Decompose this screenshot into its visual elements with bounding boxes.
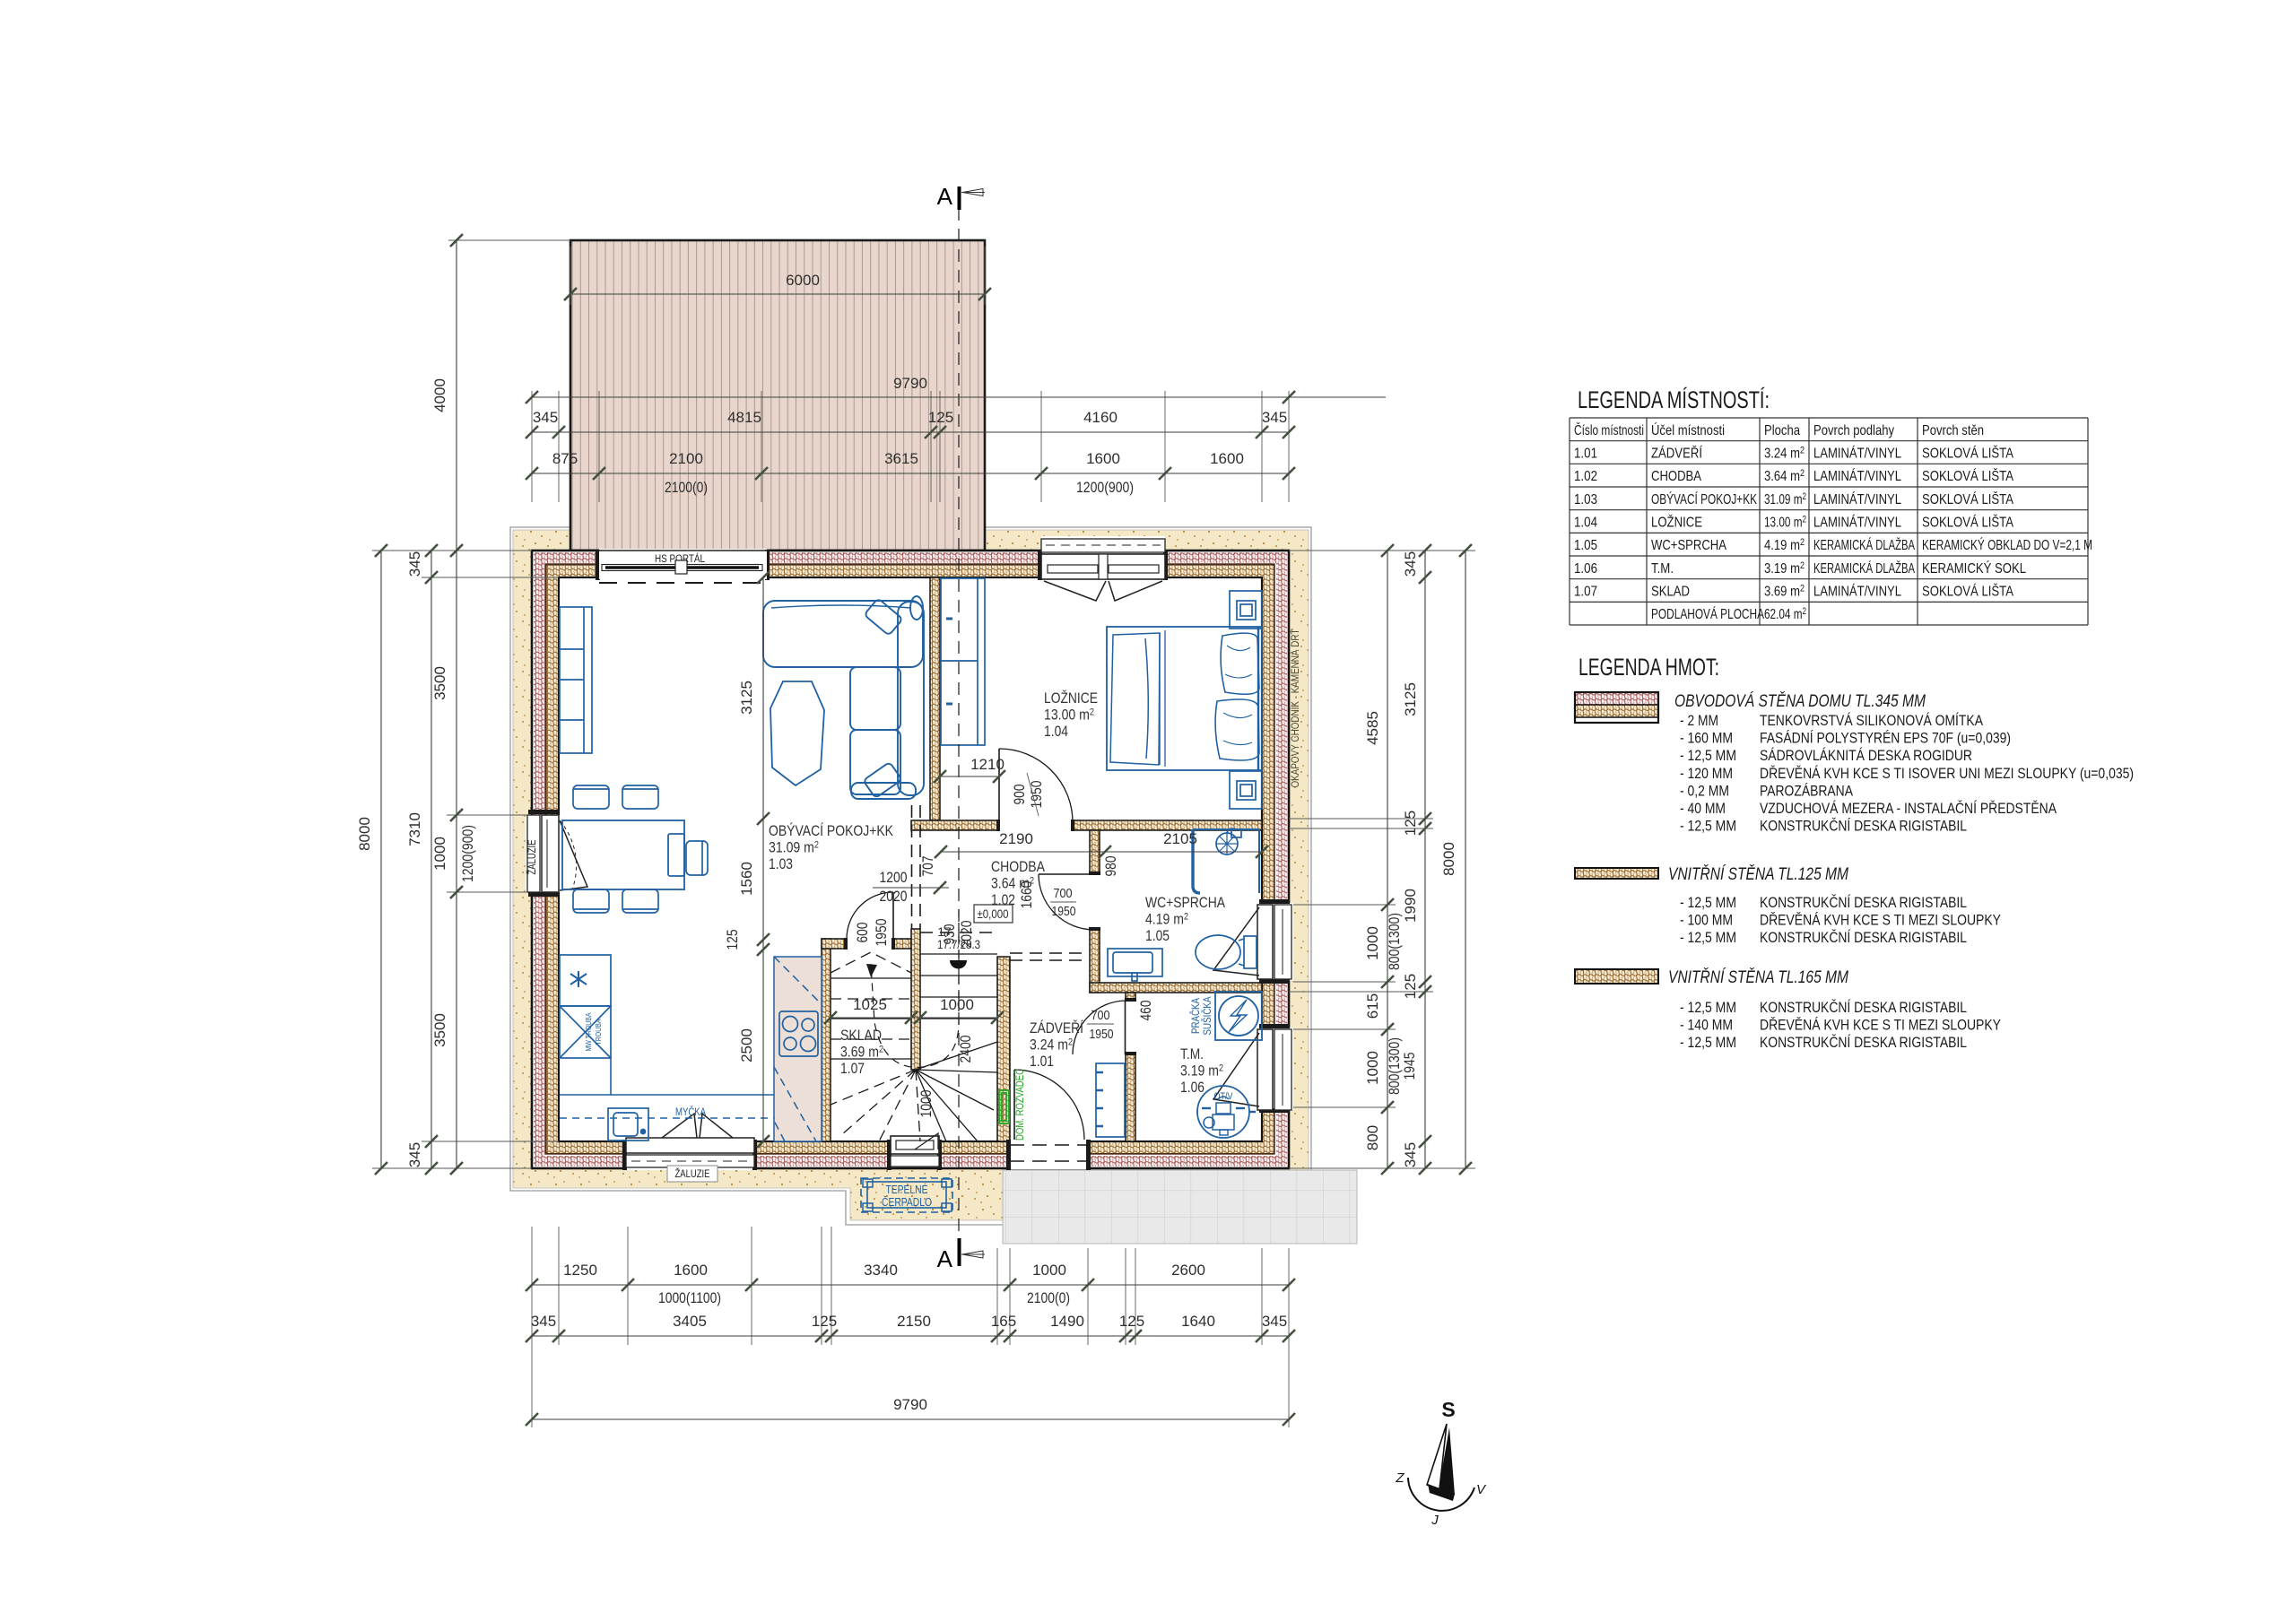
svg-text:OT/V: OT/V bbox=[1214, 1091, 1234, 1102]
svg-text:Z: Z bbox=[1395, 1470, 1405, 1486]
svg-text:- 100 MM: - 100 MM bbox=[1680, 912, 1733, 929]
svg-text:KONSTRUKČNÍ DESKA RIGISTABIL: KONSTRUKČNÍ DESKA RIGISTABIL bbox=[1760, 818, 1967, 835]
svg-text:1000: 1000 bbox=[1032, 1262, 1066, 1279]
svg-text:800: 800 bbox=[1364, 1125, 1381, 1150]
svg-text:2190: 2190 bbox=[999, 830, 1033, 847]
svg-text:125: 125 bbox=[724, 930, 741, 950]
svg-text:KERAMICKÁ DLAŽBA: KERAMICKÁ DLAŽBA bbox=[1813, 559, 1915, 577]
svg-text:1990: 1990 bbox=[1402, 889, 1419, 923]
svg-text:1560: 1560 bbox=[738, 862, 755, 896]
svg-text:1.01: 1.01 bbox=[1574, 447, 1597, 462]
svg-text:SOKLOVÁ LIŠTA: SOKLOVÁ LIŠTA bbox=[1922, 583, 2013, 600]
svg-text:4000: 4000 bbox=[431, 378, 448, 412]
svg-text:4160: 4160 bbox=[1083, 409, 1118, 426]
svg-text:3.19 m2: 3.19 m2 bbox=[1764, 560, 1805, 577]
svg-text:ŽALUZIE: ŽALUZIE bbox=[526, 839, 538, 874]
svg-text:- 12,5 MM: - 12,5 MM bbox=[1680, 999, 1736, 1016]
svg-text:31.09 m2: 31.09 m2 bbox=[1764, 491, 1806, 507]
svg-text:KONSTRUKČNÍ DESKA RIGISTABIL: KONSTRUKČNÍ DESKA RIGISTABIL bbox=[1760, 999, 1967, 1016]
svg-text:VNITŘNÍ STĚNA TL.125 MM: VNITŘNÍ STĚNA TL.125 MM bbox=[1668, 864, 1848, 884]
svg-text:V: V bbox=[1476, 1482, 1487, 1497]
svg-text:1600: 1600 bbox=[1086, 450, 1120, 467]
svg-text:7310: 7310 bbox=[406, 812, 423, 846]
svg-text:4585: 4585 bbox=[1364, 711, 1381, 745]
svg-text:1.07: 1.07 bbox=[840, 1060, 865, 1077]
svg-text:LEGENDA MÍSTNOSTÍ:: LEGENDA MÍSTNOSTÍ: bbox=[1578, 386, 1770, 413]
svg-text:700: 700 bbox=[1091, 1008, 1110, 1023]
svg-text:2500: 2500 bbox=[738, 1028, 755, 1063]
svg-text:TENKOVRSTVÁ SILIKONOVÁ OMÍTKA: TENKOVRSTVÁ SILIKONOVÁ OMÍTKA bbox=[1760, 712, 1984, 729]
svg-text:125: 125 bbox=[1402, 974, 1419, 999]
svg-text:PAROZÁBRANA: PAROZÁBRANA bbox=[1760, 782, 1854, 799]
svg-text:ŽALUZIE: ŽALUZIE bbox=[675, 1168, 710, 1180]
svg-text:VNITŘNÍ STĚNA TL.165 MM: VNITŘNÍ STĚNA TL.165 MM bbox=[1668, 967, 1848, 987]
svg-text:- 12,5 MM: - 12,5 MM bbox=[1680, 894, 1736, 911]
svg-text:LAMINÁT/VINYL: LAMINÁT/VINYL bbox=[1813, 514, 1901, 531]
svg-text:Povrch stěn: Povrch stěn bbox=[1922, 423, 1984, 438]
svg-text:1.01: 1.01 bbox=[1030, 1053, 1054, 1070]
svg-text:T.M.: T.M. bbox=[1651, 561, 1674, 577]
svg-text:13.00 m2: 13.00 m2 bbox=[1044, 707, 1094, 724]
svg-text:345: 345 bbox=[531, 1313, 556, 1330]
svg-text:- 160 MM: - 160 MM bbox=[1680, 730, 1733, 747]
svg-text:KONSTRUKČNÍ DESKA RIGISTABIL: KONSTRUKČNÍ DESKA RIGISTABIL bbox=[1760, 1034, 1967, 1051]
svg-text:CHODBA: CHODBA bbox=[991, 858, 1046, 875]
svg-text:DŘEVĚNÁ KVH KCE S TI ISOVER UN: DŘEVĚNÁ KVH KCE S TI ISOVER UNI MEZI SLO… bbox=[1760, 765, 2134, 782]
svg-text:3615: 3615 bbox=[884, 450, 918, 467]
svg-text:T.M.: T.M. bbox=[1180, 1045, 1204, 1063]
svg-text:DŘEVĚNÁ KVH KCE S TI MEZI SLOU: DŘEVĚNÁ KVH KCE S TI MEZI SLOUPKY bbox=[1760, 912, 2001, 929]
svg-text:±0,000: ±0,000 bbox=[978, 906, 1009, 921]
svg-text:FASÁDNÍ POLYSTYRÉN EPS 70F (u=: FASÁDNÍ POLYSTYRÉN EPS 70F (u=0,039) bbox=[1760, 730, 2011, 747]
svg-text:1.03: 1.03 bbox=[1574, 492, 1597, 507]
svg-text:1.06: 1.06 bbox=[1574, 561, 1597, 577]
svg-text:345: 345 bbox=[1402, 551, 1419, 577]
svg-text:2020: 2020 bbox=[880, 888, 908, 905]
svg-text:1.07: 1.07 bbox=[1574, 585, 1597, 600]
svg-text:1600: 1600 bbox=[674, 1262, 708, 1279]
svg-text:WC+SPRCHA: WC+SPRCHA bbox=[1145, 894, 1226, 911]
svg-text:2100(0): 2100(0) bbox=[665, 479, 708, 496]
svg-text:345: 345 bbox=[406, 1142, 423, 1167]
svg-text:SOKLOVÁ LIŠTA: SOKLOVÁ LIŠTA bbox=[1922, 467, 2013, 484]
svg-text:- 12,5 MM: - 12,5 MM bbox=[1680, 747, 1736, 764]
svg-text:3.24 m2: 3.24 m2 bbox=[1764, 446, 1805, 462]
svg-text:2100: 2100 bbox=[669, 450, 703, 467]
svg-text:ČERPADLO: ČERPADLO bbox=[882, 1195, 932, 1209]
svg-text:345: 345 bbox=[406, 551, 423, 577]
svg-text:PRAČKA: PRAČKA bbox=[1188, 998, 1202, 1034]
svg-text:LOŽNICE: LOŽNICE bbox=[1651, 514, 1702, 531]
svg-text:600: 600 bbox=[854, 923, 871, 943]
svg-text:SOKLOVÁ LIŠTA: SOKLOVÁ LIŠTA bbox=[1922, 445, 2013, 462]
svg-text:460: 460 bbox=[1137, 1001, 1154, 1021]
svg-text:- 12,5 MM: - 12,5 MM bbox=[1680, 818, 1736, 835]
svg-text:SKLAD: SKLAD bbox=[840, 1027, 882, 1044]
svg-text:2600: 2600 bbox=[1171, 1262, 1205, 1279]
svg-text:TEPELNÉ: TEPELNÉ bbox=[886, 1183, 928, 1196]
svg-text:S: S bbox=[1441, 1398, 1455, 1421]
svg-text:1025: 1025 bbox=[853, 996, 887, 1013]
svg-text:MYČKA: MYČKA bbox=[675, 1106, 706, 1118]
svg-text:707: 707 bbox=[919, 856, 936, 877]
svg-text:2100(0): 2100(0) bbox=[1027, 1289, 1070, 1306]
svg-text:3.69 m2: 3.69 m2 bbox=[840, 1044, 883, 1061]
svg-text:MW TROUBA: MW TROUBA bbox=[584, 1012, 593, 1051]
svg-text:1660: 1660 bbox=[1018, 881, 1035, 909]
svg-text:1600: 1600 bbox=[1210, 450, 1244, 467]
svg-text:DOM. ROZVADĚČ: DOM. ROZVADĚČ bbox=[1014, 1069, 1026, 1141]
svg-text:ZÁDVEŘÍ: ZÁDVEŘÍ bbox=[1030, 1019, 1083, 1037]
svg-text:9790: 9790 bbox=[893, 375, 927, 392]
svg-text:- 140 MM: - 140 MM bbox=[1680, 1017, 1733, 1034]
svg-text:- 12,5 MM: - 12,5 MM bbox=[1680, 1034, 1736, 1051]
svg-text:OBÝVACÍ POKOJ+KK: OBÝVACÍ POKOJ+KK bbox=[1651, 490, 1757, 507]
svg-text:LOŽNICE: LOŽNICE bbox=[1044, 690, 1098, 707]
svg-text:LAMINÁT/VINYL: LAMINÁT/VINYL bbox=[1813, 490, 1901, 507]
svg-text:- 12,5 MM: - 12,5 MM bbox=[1680, 929, 1736, 946]
svg-text:345: 345 bbox=[533, 409, 558, 426]
svg-text:875: 875 bbox=[552, 450, 578, 467]
svg-text:3.19 m2: 3.19 m2 bbox=[1180, 1063, 1223, 1080]
svg-text:KERAMICKÁ DLAŽBA: KERAMICKÁ DLAŽBA bbox=[1813, 536, 1915, 553]
svg-text:125: 125 bbox=[812, 1313, 837, 1330]
svg-text:1200(900): 1200(900) bbox=[459, 825, 476, 882]
svg-text:1000(1100): 1000(1100) bbox=[658, 1289, 721, 1306]
svg-text:125: 125 bbox=[928, 409, 953, 426]
svg-text:1.06: 1.06 bbox=[1180, 1079, 1205, 1096]
svg-text:- 40 MM: - 40 MM bbox=[1680, 800, 1726, 817]
svg-text:A: A bbox=[937, 1245, 953, 1272]
svg-text:1200(900): 1200(900) bbox=[1076, 479, 1134, 496]
svg-text:1945: 1945 bbox=[1401, 1053, 1418, 1080]
svg-text:4.19 m2: 4.19 m2 bbox=[1145, 911, 1188, 928]
svg-text:1000: 1000 bbox=[431, 837, 448, 871]
svg-text:900: 900 bbox=[1011, 785, 1028, 805]
svg-text:1.03: 1.03 bbox=[769, 855, 793, 872]
svg-text:3340: 3340 bbox=[864, 1262, 898, 1279]
svg-text:KONSTRUKČNÍ DESKA RIGISTABIL: KONSTRUKČNÍ DESKA RIGISTABIL bbox=[1760, 894, 1967, 911]
svg-text:Účel místnosti: Účel místnosti bbox=[1651, 421, 1725, 438]
svg-text:1250: 1250 bbox=[563, 1262, 597, 1279]
svg-text:SUŠIČKA: SUŠIČKA bbox=[1200, 997, 1213, 1036]
svg-text:700: 700 bbox=[1054, 886, 1073, 901]
svg-text:3500: 3500 bbox=[431, 1013, 448, 1047]
svg-text:8000: 8000 bbox=[356, 817, 373, 851]
svg-text:TROUBA: TROUBA bbox=[594, 1019, 603, 1045]
svg-text:1950: 1950 bbox=[873, 919, 890, 947]
svg-text:2150: 2150 bbox=[897, 1313, 931, 1330]
svg-text:SOKLOVÁ LIŠTA: SOKLOVÁ LIŠTA bbox=[1922, 490, 2013, 507]
svg-text:VZDUCHOVÁ MEZERA - INSTALAČNÍ: VZDUCHOVÁ MEZERA - INSTALAČNÍ PŘEDSTĚNA bbox=[1760, 800, 2057, 817]
svg-text:OBVODOVÁ STĚNA DOMU TL.345 MM: OBVODOVÁ STĚNA DOMU TL.345 MM bbox=[1674, 691, 1926, 711]
svg-text:1950: 1950 bbox=[1052, 904, 1076, 919]
svg-text:345: 345 bbox=[1262, 409, 1287, 426]
svg-text:CHODBA: CHODBA bbox=[1651, 469, 1701, 484]
svg-text:1.05: 1.05 bbox=[1145, 927, 1170, 944]
svg-text:125: 125 bbox=[1119, 1313, 1144, 1330]
svg-text:1.04: 1.04 bbox=[1574, 516, 1597, 531]
svg-text:KERAMICKÝ OBKLAD DO V=2,1 M: KERAMICKÝ OBKLAD DO V=2,1 M bbox=[1922, 536, 2092, 553]
svg-text:1.04: 1.04 bbox=[1044, 723, 1068, 740]
svg-text:1.05: 1.05 bbox=[1574, 538, 1597, 553]
svg-text:1000: 1000 bbox=[940, 996, 974, 1013]
svg-text:3.69 m2: 3.69 m2 bbox=[1764, 584, 1805, 600]
svg-text:1200: 1200 bbox=[880, 869, 908, 886]
svg-text:125: 125 bbox=[1402, 811, 1419, 836]
svg-text:615: 615 bbox=[1364, 993, 1381, 1019]
svg-text:165: 165 bbox=[991, 1313, 1016, 1330]
svg-text:LEGENDA HMOT:: LEGENDA HMOT: bbox=[1578, 654, 1719, 681]
svg-text:Plocha: Plocha bbox=[1764, 423, 1800, 438]
svg-text:WC+SPRCHA: WC+SPRCHA bbox=[1651, 538, 1726, 553]
svg-text:PODLAHOVÁ PLOCHA: PODLAHOVÁ PLOCHA bbox=[1651, 605, 1764, 622]
svg-text:1210: 1210 bbox=[970, 756, 1004, 773]
svg-text:800(1300): 800(1300) bbox=[1386, 913, 1403, 970]
svg-text:SKLAD: SKLAD bbox=[1651, 585, 1690, 600]
svg-text:4815: 4815 bbox=[727, 409, 761, 426]
svg-text:3.64 m2: 3.64 m2 bbox=[1764, 468, 1805, 484]
svg-text:31.09 m2: 31.09 m2 bbox=[769, 839, 819, 856]
svg-text:6000: 6000 bbox=[786, 272, 820, 289]
svg-text:3125: 3125 bbox=[738, 681, 755, 715]
svg-text:KONSTRUKČNÍ DESKA RIGISTABIL: KONSTRUKČNÍ DESKA RIGISTABIL bbox=[1760, 929, 1967, 946]
svg-text:8000: 8000 bbox=[1440, 842, 1457, 876]
svg-text:1950: 1950 bbox=[1090, 1027, 1114, 1042]
svg-text:1000: 1000 bbox=[1364, 926, 1381, 960]
svg-text:SOKLOVÁ LIŠTA: SOKLOVÁ LIŠTA bbox=[1922, 514, 2013, 531]
svg-text:2400: 2400 bbox=[957, 1036, 974, 1063]
svg-text:9790: 9790 bbox=[893, 1396, 927, 1413]
svg-text:2105: 2105 bbox=[1163, 830, 1197, 847]
svg-text:A: A bbox=[937, 183, 953, 210]
svg-text:- 2 MM: - 2 MM bbox=[1680, 712, 1718, 729]
svg-text:OBÝVACÍ POKOJ+KK: OBÝVACÍ POKOJ+KK bbox=[769, 822, 894, 839]
svg-text:3.24 m2: 3.24 m2 bbox=[1030, 1037, 1073, 1054]
svg-text:1000: 1000 bbox=[1364, 1051, 1381, 1085]
svg-text:- 0,2 MM: - 0,2 MM bbox=[1680, 782, 1729, 799]
svg-text:- 120 MM: - 120 MM bbox=[1680, 765, 1733, 782]
svg-text:345: 345 bbox=[1402, 1142, 1419, 1167]
svg-text:1490: 1490 bbox=[1050, 1313, 1084, 1330]
svg-text:J: J bbox=[1431, 1513, 1439, 1528]
svg-text:DŘEVĚNÁ KVH KCE S TI MEZI SLOU: DŘEVĚNÁ KVH KCE S TI MEZI SLOUPKY bbox=[1760, 1017, 2001, 1034]
svg-text:3405: 3405 bbox=[673, 1313, 707, 1330]
svg-text:3125: 3125 bbox=[1402, 682, 1419, 716]
svg-text:3500: 3500 bbox=[431, 666, 448, 700]
svg-text:4.19 m2: 4.19 m2 bbox=[1764, 537, 1805, 553]
svg-text:980: 980 bbox=[1102, 856, 1119, 877]
svg-text:ZÁDVEŘÍ: ZÁDVEŘÍ bbox=[1651, 445, 1702, 462]
svg-text:17.7/28.3: 17.7/28.3 bbox=[937, 937, 980, 951]
svg-text:1000: 1000 bbox=[918, 1090, 935, 1118]
svg-text:345: 345 bbox=[1262, 1313, 1287, 1330]
svg-text:LAMINÁT/VINYL: LAMINÁT/VINYL bbox=[1813, 583, 1901, 600]
svg-text:KERAMICKÝ SOKL: KERAMICKÝ SOKL bbox=[1922, 559, 2026, 577]
svg-text:1640: 1640 bbox=[1181, 1313, 1215, 1330]
svg-text:LAMINÁT/VINYL: LAMINÁT/VINYL bbox=[1813, 467, 1901, 484]
svg-text:OKAPOVÝ CHODNÍK - KAMENNÁ DRŤ: OKAPOVÝ CHODNÍK - KAMENNÁ DRŤ bbox=[1288, 629, 1301, 788]
svg-text:1.02: 1.02 bbox=[1574, 469, 1597, 484]
svg-text:62.04 m2: 62.04 m2 bbox=[1764, 606, 1806, 622]
svg-text:LAMINÁT/VINYL: LAMINÁT/VINYL bbox=[1813, 445, 1901, 462]
svg-text:Číslo místnosti: Číslo místnosti bbox=[1574, 421, 1644, 438]
svg-text:13.00 m2: 13.00 m2 bbox=[1764, 515, 1806, 531]
svg-text:Povrch podlahy: Povrch podlahy bbox=[1813, 423, 1894, 438]
svg-text:SÁDROVLÁKNITÁ DESKA ROGIDUR: SÁDROVLÁKNITÁ DESKA ROGIDUR bbox=[1760, 747, 1972, 764]
